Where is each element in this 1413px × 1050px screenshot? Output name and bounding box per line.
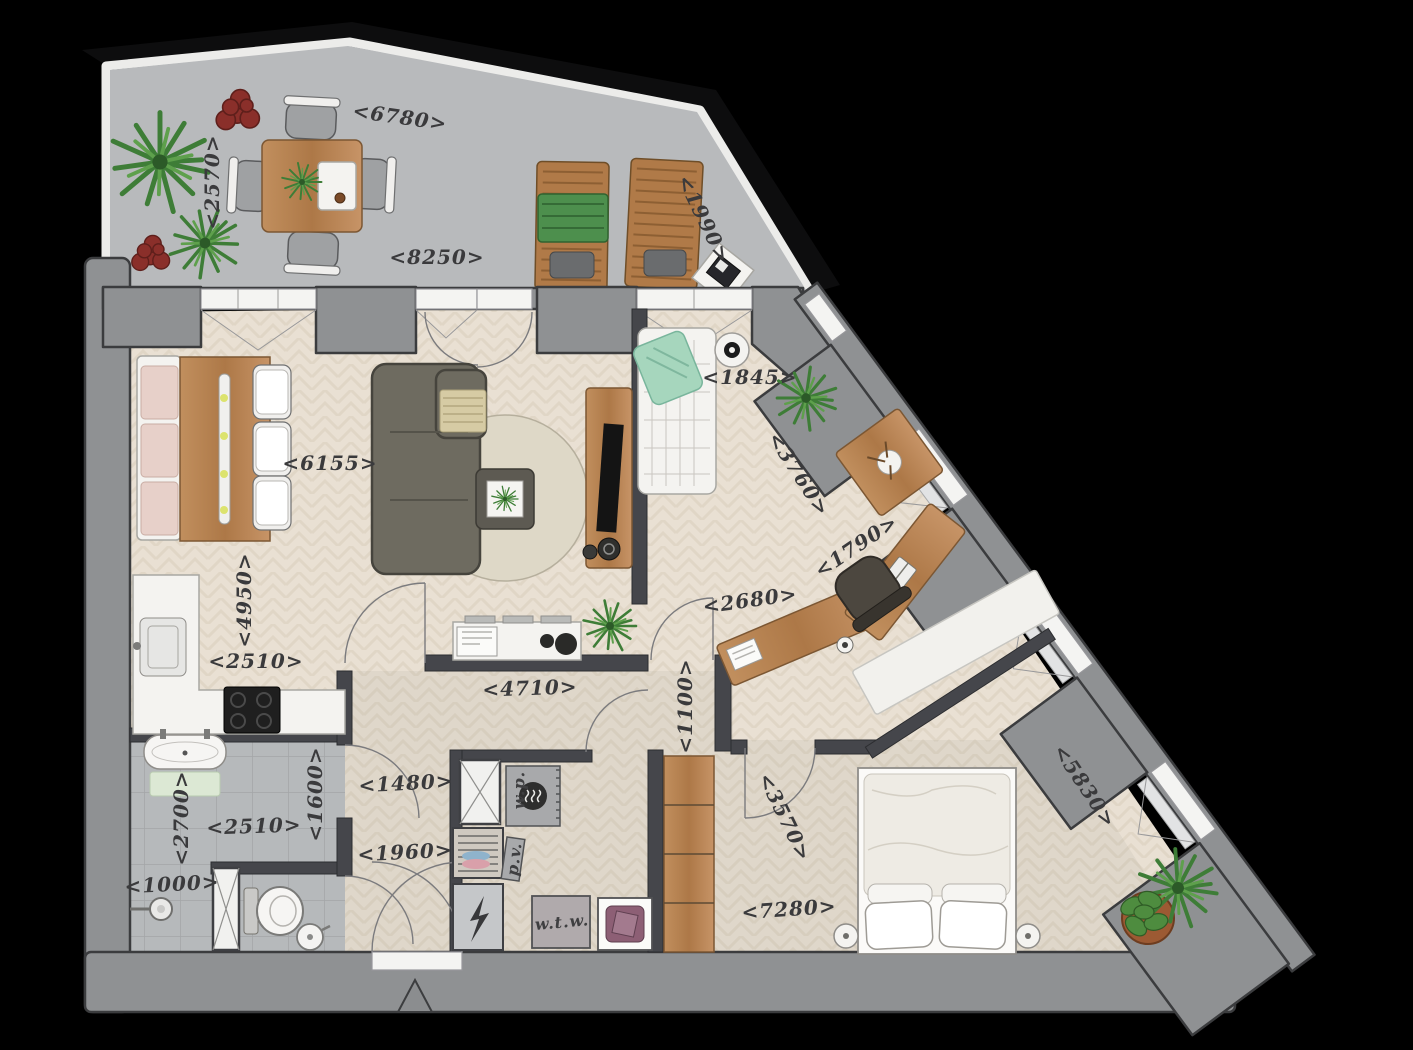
lounger-pillow — [644, 250, 686, 276]
bench-cushion — [141, 366, 178, 419]
bench-cushion — [141, 424, 178, 477]
dimension-label: <2510> — [206, 812, 302, 839]
cooktop-burner — [540, 634, 554, 648]
dimension-label: <1480> — [358, 769, 454, 798]
lounger-pillow — [550, 252, 594, 278]
dimension-label: <2570> — [200, 134, 224, 229]
vent-shaft — [460, 760, 500, 824]
utility-label: w.p. — [510, 771, 529, 810]
island-vent — [541, 616, 571, 623]
speaker-icon — [598, 538, 620, 560]
washing-machine — [598, 898, 652, 950]
green-towel — [538, 194, 608, 242]
pillow — [939, 900, 1007, 949]
dimension-label: <1100> — [673, 658, 697, 753]
toilet — [244, 887, 303, 935]
exterior-wall-left — [85, 258, 130, 1012]
dimension-label: <1000> — [124, 870, 220, 899]
terrace-chair — [282, 96, 340, 141]
floor-plan-stage: <6780><2570><8250><1990><1845><6155><376… — [0, 0, 1413, 1050]
faucet — [204, 729, 210, 739]
faucet — [160, 729, 166, 739]
speaker-ball-icon — [583, 545, 597, 559]
dining-chairs — [253, 365, 291, 530]
window — [416, 289, 477, 309]
window — [201, 289, 316, 309]
candle — [220, 506, 228, 514]
wall-pier — [537, 287, 637, 353]
candle — [220, 432, 228, 440]
wall-pier — [316, 287, 416, 353]
dimension-label: <2510> — [208, 649, 303, 673]
terrace-chair — [284, 231, 342, 276]
dimension-label: <8250> — [389, 245, 484, 269]
dimension-label: <6155> — [282, 451, 377, 475]
bench-cushion — [141, 482, 178, 535]
island-vent — [503, 616, 533, 623]
dimension-label: <1845> — [702, 365, 797, 389]
meter-closet — [453, 884, 503, 950]
terrace-table-tray — [318, 162, 356, 210]
coat-closet — [453, 828, 503, 878]
dimension-label: <1960> — [357, 838, 453, 867]
sofa-blanket — [440, 390, 486, 432]
double-bed — [858, 768, 1016, 954]
exterior-wall-bottom — [85, 952, 1235, 1012]
floor-plan: <6780><2570><8250><1990><1845><6155><376… — [0, 0, 1413, 1050]
wall-hall-bathroom — [337, 818, 352, 876]
wall-pier — [103, 287, 201, 347]
hanging-clothes — [462, 859, 490, 869]
sink-faucet — [133, 642, 141, 650]
candle — [220, 394, 228, 402]
dimension-label: <2700> — [169, 770, 193, 865]
dimension-label: <4710> — [482, 674, 578, 701]
terrace-door — [477, 289, 532, 309]
dimension-label: <4950> — [232, 552, 256, 647]
duvet — [864, 774, 1010, 896]
cooktop-burner — [555, 633, 577, 655]
dimension-label: <1600> — [303, 746, 327, 841]
pillow — [865, 900, 933, 949]
front-door — [372, 952, 462, 970]
candle — [220, 470, 228, 478]
kitchen-sink — [140, 618, 186, 676]
coffee-cup — [335, 193, 345, 203]
island-vent — [465, 616, 495, 623]
